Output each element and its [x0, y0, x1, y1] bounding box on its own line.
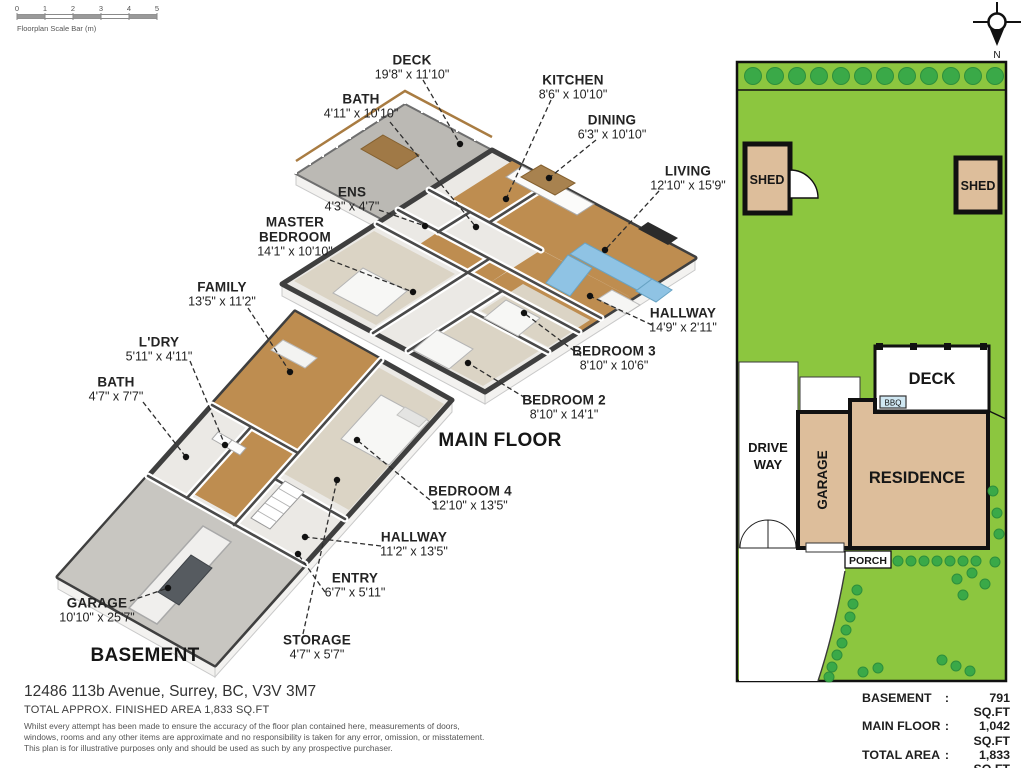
- room-name: FAMILY: [188, 281, 256, 296]
- label-kitchen: KITCHEN 8'6" x 10'10": [539, 74, 608, 103]
- room-name: BEDROOM 3: [572, 345, 656, 360]
- scale-tick-2: 2: [71, 4, 75, 13]
- site-garage-label: GARAGE: [815, 450, 830, 509]
- label-laundry: L'DRY 5'11" x 4'11": [126, 336, 193, 365]
- driveway-label-1: DRIVE: [748, 440, 788, 455]
- label-hallway-main: HALLWAY 14'9" x 2'11": [649, 307, 717, 336]
- room-name: BATH: [89, 376, 144, 391]
- scale-tick-0: 0: [15, 4, 19, 13]
- driveway-label-2: WAY: [754, 457, 783, 472]
- label-garage: GARAGE 10'10" x 25'7": [59, 597, 135, 626]
- label-dining: DINING 6'3" x 10'10": [578, 114, 647, 143]
- room-name: L'DRY: [126, 336, 193, 351]
- compass: N: [973, 2, 1021, 61]
- room-name: BEDROOM 2: [522, 394, 606, 409]
- room-dims: 5'11" x 4'11": [126, 351, 193, 365]
- room-dims: 8'6" x 10'10": [539, 89, 608, 103]
- label-entry: ENTRY 6'7" x 5'11": [325, 572, 386, 601]
- scale-bar: 0 1 2 3 4 5 Floorplan Scale Bar (m): [15, 4, 159, 33]
- compass-needle: [990, 29, 1004, 46]
- area-label: MAIN FLOOR: [862, 719, 942, 747]
- shed-left-label: SHED: [750, 173, 785, 187]
- leader-line: [143, 402, 186, 457]
- room-dot: [503, 196, 509, 202]
- room-dot: [222, 442, 228, 448]
- room-dot: [334, 477, 340, 483]
- room-dims: 4'7" x 7'7": [89, 391, 144, 405]
- garage-door: [806, 543, 844, 552]
- room-dims: 11'2" x 13'5": [380, 546, 448, 560]
- label-living: LIVING 12'10" x 15'9": [650, 165, 726, 194]
- room-name: ENTRY: [325, 572, 386, 587]
- table-row: BASEMENT : 791 SQ.FT: [862, 691, 1010, 719]
- footer-block: 12486 113b Avenue, Surrey, BC, V3V 3M7 T…: [24, 683, 584, 753]
- room-dims: 13'5" x 11'2": [188, 296, 256, 310]
- room-name: DINING: [578, 114, 647, 129]
- label-hallway-basement: HALLWAY 11'2" x 13'5": [380, 531, 448, 560]
- area-label: TOTAL AREA: [862, 748, 942, 768]
- room-dot: [354, 437, 360, 443]
- room-dims: 14'1" x 10'10": [247, 245, 343, 259]
- room-name: BATH: [324, 93, 399, 108]
- scale-tick-1: 1: [43, 4, 47, 13]
- leader-line: [549, 140, 596, 178]
- scale-bar-label: Floorplan Scale Bar (m): [17, 24, 97, 33]
- address: 12486 113b Avenue, Surrey, BC, V3V 3M7: [24, 683, 584, 701]
- room-dims: 4'3" x 4'7": [325, 201, 380, 215]
- shed-right-label: SHED: [961, 179, 996, 193]
- room-dims: 8'10" x 14'1": [522, 409, 606, 423]
- room-dims: 8'10" x 10'6": [572, 360, 656, 374]
- area-value: 1,833 SQ.FT: [952, 748, 1010, 768]
- room-dims: 19'8" x 11'10": [375, 69, 450, 83]
- floorplan-page: 0 1 2 3 4 5 Floorplan Scale Bar (m): [0, 0, 1024, 768]
- room-name: STORAGE: [283, 634, 351, 649]
- area-value: 1,042 SQ.FT: [952, 719, 1010, 747]
- room-dims: 12'10" x 15'9": [650, 180, 726, 194]
- area-summary-table: BASEMENT : 791 SQ.FT MAIN FLOOR : 1,042 …: [862, 691, 1010, 768]
- label-bath-basement: BATH 4'7" x 7'7": [89, 376, 144, 405]
- disclaimer-line-3: This plan is for illustrative purposes o…: [24, 743, 584, 754]
- room-name: BEDROOM 4: [428, 485, 512, 500]
- room-dot: [546, 175, 552, 181]
- room-dims: 12'10" x 13'5": [428, 500, 512, 514]
- disclaimer-line-1: Whilst every attempt has been made to en…: [24, 721, 584, 732]
- scale-bar-seg: [73, 15, 101, 19]
- label-bedroom-3: BEDROOM 3 8'10" x 10'6": [572, 345, 656, 374]
- room-dims: 6'3" x 10'10": [578, 129, 647, 143]
- room-dims: 14'9" x 2'11": [649, 322, 717, 336]
- room-name: GARAGE: [59, 597, 135, 612]
- room-dims: 10'10" x 25'7": [59, 612, 135, 626]
- site-residence-label: RESIDENCE: [869, 469, 965, 487]
- room-name: LIVING: [650, 165, 726, 180]
- room-dims: 4'7" x 5'7": [283, 649, 351, 663]
- compass-circle: [989, 14, 1006, 31]
- room-dims: 6'7" x 5'11": [325, 587, 386, 601]
- porch-label: PORCH: [849, 555, 887, 567]
- label-bedroom-4: BEDROOM 4 12'10" x 13'5": [428, 485, 512, 514]
- scale-tick-3: 3: [99, 4, 103, 13]
- label-storage: STORAGE 4'7" x 5'7": [283, 634, 351, 663]
- room-dims: 4'11" x 10'10": [324, 108, 399, 122]
- site-deck-label: DECK: [909, 370, 956, 388]
- label-bedroom-2: BEDROOM 2 8'10" x 14'1": [522, 394, 606, 423]
- area-value: 791 SQ.FT: [952, 691, 1010, 719]
- room-dot: [302, 534, 308, 540]
- room-name: DECK: [375, 54, 450, 69]
- room-name: KITCHEN: [539, 74, 608, 89]
- room-dot: [602, 247, 608, 253]
- label-deck: DECK 19'8" x 11'10": [375, 54, 450, 83]
- area-separator: :: [942, 719, 952, 747]
- room-dot: [587, 293, 593, 299]
- disclaimer-line-2: windows, rooms and any other items are a…: [24, 732, 584, 743]
- label-master-bedroom: MASTER BEDROOM 14'1" x 10'10": [247, 215, 343, 258]
- bbq-label: BBQ: [885, 399, 902, 408]
- room-dot: [473, 224, 479, 230]
- site-plan: BBQ PORCH SHED SHED DECK DRIVE WAY GARAG…: [737, 2, 1021, 682]
- table-row: MAIN FLOOR : 1,042 SQ.FT: [862, 719, 1010, 747]
- label-bath-main: BATH 4'11" x 10'10": [324, 93, 399, 122]
- main-floor-title: MAIN FLOOR: [438, 430, 561, 452]
- room-dot: [521, 310, 527, 316]
- area-label: BASEMENT: [862, 691, 942, 719]
- room-dot: [410, 289, 416, 295]
- room-dot: [465, 360, 471, 366]
- basement-title: BASEMENT: [90, 645, 199, 667]
- room-name: ENS: [325, 186, 380, 201]
- room-dot: [183, 454, 189, 460]
- room-dot: [165, 585, 171, 591]
- scale-tick-5: 5: [155, 4, 159, 13]
- room-name: HALLWAY: [380, 531, 448, 546]
- scale-bar-seg: [17, 15, 45, 19]
- compass-n-label: N: [993, 50, 1000, 61]
- room-name: HALLWAY: [649, 307, 717, 322]
- table-row: TOTAL AREA : 1,833 SQ.FT: [862, 748, 1010, 768]
- room-dot: [295, 551, 301, 557]
- scale-tick-4: 4: [127, 4, 131, 13]
- scale-bar-seg: [129, 15, 157, 19]
- label-ens: ENS 4'3" x 4'7": [325, 186, 380, 215]
- room-dot: [422, 223, 428, 229]
- room-name: MASTER BEDROOM: [247, 215, 343, 245]
- label-family: FAMILY 13'5" x 11'2": [188, 281, 256, 310]
- room-dot: [287, 369, 293, 375]
- area-separator: :: [942, 691, 952, 719]
- room-dot: [457, 141, 463, 147]
- area-separator: :: [942, 748, 952, 768]
- total-area-line: TOTAL APPROX. FINISHED AREA 1,833 SQ.FT: [24, 704, 584, 716]
